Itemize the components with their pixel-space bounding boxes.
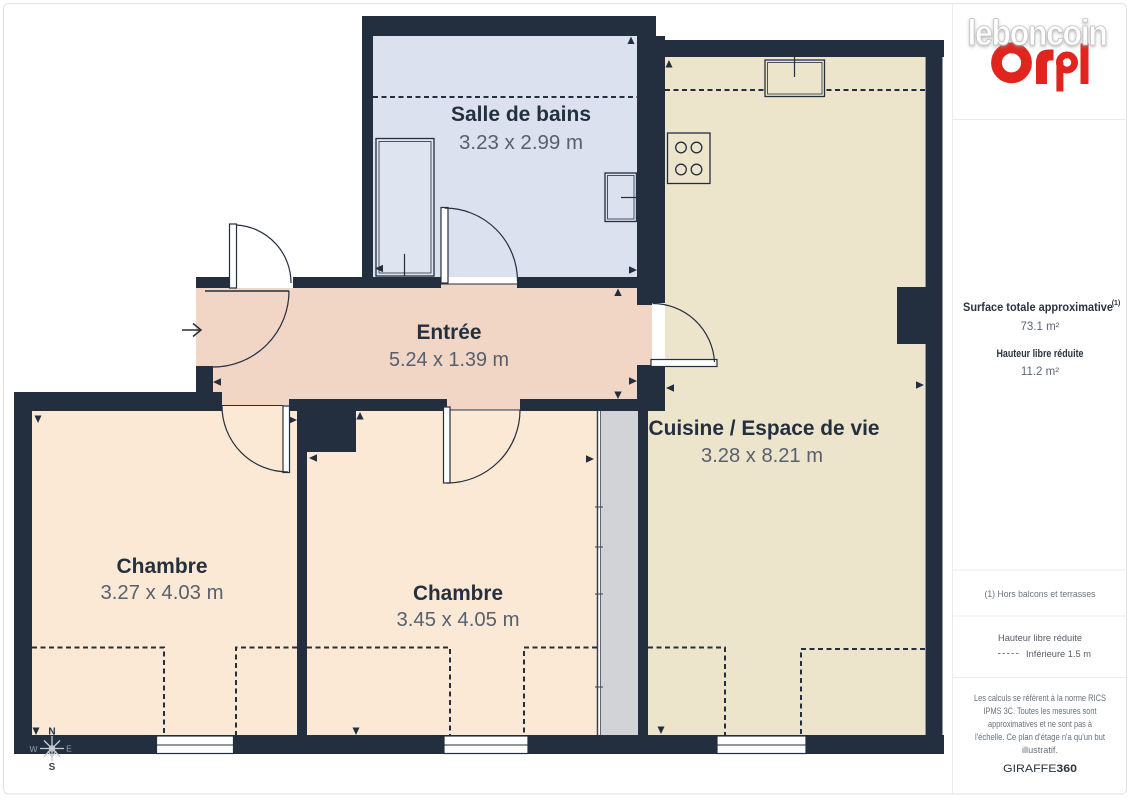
svg-text:73.1 m²: 73.1 m² <box>1021 321 1060 333</box>
svg-text:11.2 m²: 11.2 m² <box>1021 366 1059 378</box>
svg-text:Salle de bains: Salle de bains <box>451 102 591 126</box>
svg-text:Les calculs se réfèrent à la n: Les calculs se réfèrent à la norme RICS <box>974 693 1106 703</box>
svg-text:approximatives et ne sont pas: approximatives et ne sont pas à <box>988 719 1093 729</box>
svg-text:3.28 x 8.21 m: 3.28 x 8.21 m <box>701 445 823 467</box>
svg-text:IPMS 3C. Toutes les mesures so: IPMS 3C. Toutes les mesures sont <box>984 706 1097 716</box>
svg-text:S: S <box>49 762 56 773</box>
svg-text:GIRAFFE360: GIRAFFE360 <box>1003 763 1077 775</box>
svg-text:Surface totale approximative: Surface totale approximative <box>963 302 1113 314</box>
svg-text:Chambre: Chambre <box>117 554 208 578</box>
svg-text:illustratif.: illustratif. <box>1022 745 1058 755</box>
svg-text:3.23 x 2.99 m: 3.23 x 2.99 m <box>459 132 583 154</box>
svg-text:l'échelle. Ce plan d'étage n'a: l'échelle. Ce plan d'étage n'a qu'un but <box>975 732 1105 742</box>
svg-text:W: W <box>29 744 37 754</box>
svg-text:E: E <box>66 744 72 754</box>
svg-text:3.45 x 4.05 m: 3.45 x 4.05 m <box>397 609 520 631</box>
svg-text:3.27 x 4.03 m: 3.27 x 4.03 m <box>101 582 224 604</box>
svg-text:5.24 x 1.39 m: 5.24 x 1.39 m <box>389 349 509 371</box>
svg-text:N: N <box>48 727 55 738</box>
svg-text:Entrée: Entrée <box>417 320 482 344</box>
svg-text:leboncoin: leboncoin <box>968 12 1107 53</box>
svg-text:(1): (1) <box>1112 300 1121 307</box>
svg-text:(1) Hors balcons et terrasses: (1) Hors balcons et terrasses <box>985 589 1096 600</box>
svg-text:Hauteur libre réduite: Hauteur libre réduite <box>998 633 1082 644</box>
svg-text:Inférieure 1.5 m: Inférieure 1.5 m <box>1026 649 1091 660</box>
svg-text:Chambre: Chambre <box>413 581 503 605</box>
svg-text:Hauteur libre réduite: Hauteur libre réduite <box>997 348 1084 360</box>
svg-text:Cuisine / Espace de vie: Cuisine / Espace de vie <box>649 417 880 440</box>
